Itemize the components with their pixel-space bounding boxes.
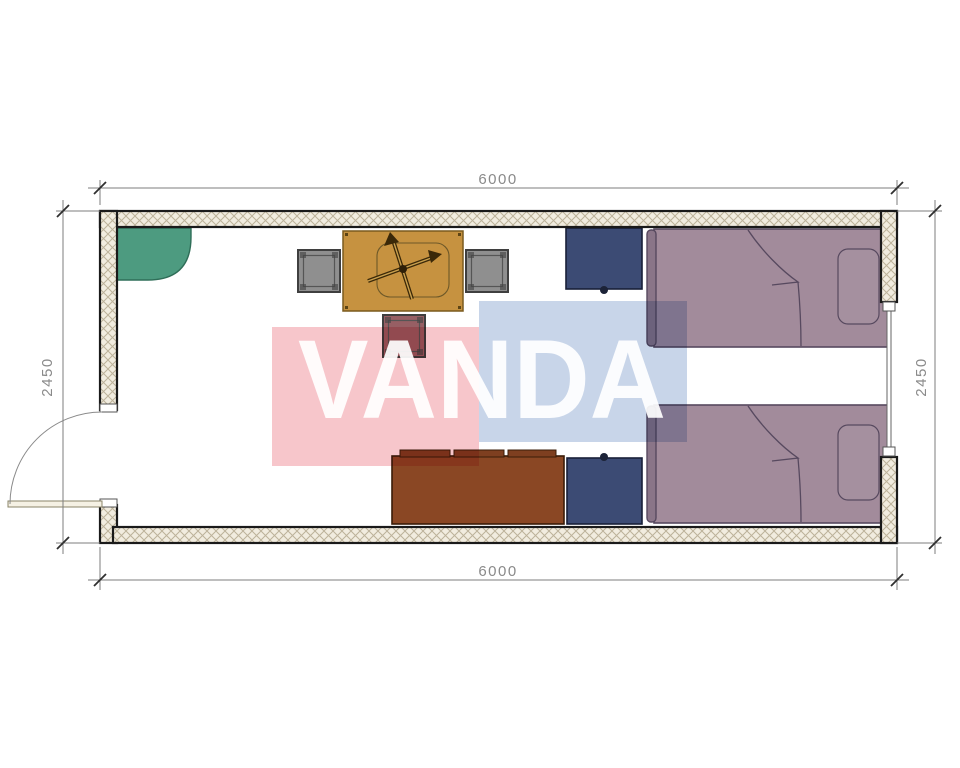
wall-right-upper: [881, 211, 897, 302]
door-leaf: [8, 501, 102, 507]
floor-plan-drawing: VANDA 6000 6000 2450 2450: [0, 0, 960, 768]
floor-plan-canvas: VANDA 6000 6000 2450 2450: [0, 0, 960, 768]
nightstand-top: [566, 228, 642, 294]
door-swing-arc: [10, 412, 102, 504]
chair-left: [298, 250, 340, 292]
wall-left-upper: [100, 211, 117, 410]
watermark-text: VANDA: [298, 317, 666, 442]
nightstand-bottom: [567, 453, 642, 524]
dimension-top: 6000: [88, 171, 909, 205]
dimension-bottom: 6000: [88, 547, 909, 590]
corner-cabinet: [117, 228, 191, 280]
wall-top: [100, 211, 897, 227]
dimension-left-label: 2450: [39, 357, 56, 396]
wall-bottom: [113, 527, 897, 543]
chair-right: [466, 250, 508, 292]
dimension-right: 2450: [897, 200, 942, 554]
dimension-bottom-label: 6000: [478, 563, 517, 580]
dimension-top-label: 6000: [478, 171, 517, 188]
dimension-right-label: 2450: [913, 357, 930, 396]
wall-right-lower: [881, 457, 897, 543]
